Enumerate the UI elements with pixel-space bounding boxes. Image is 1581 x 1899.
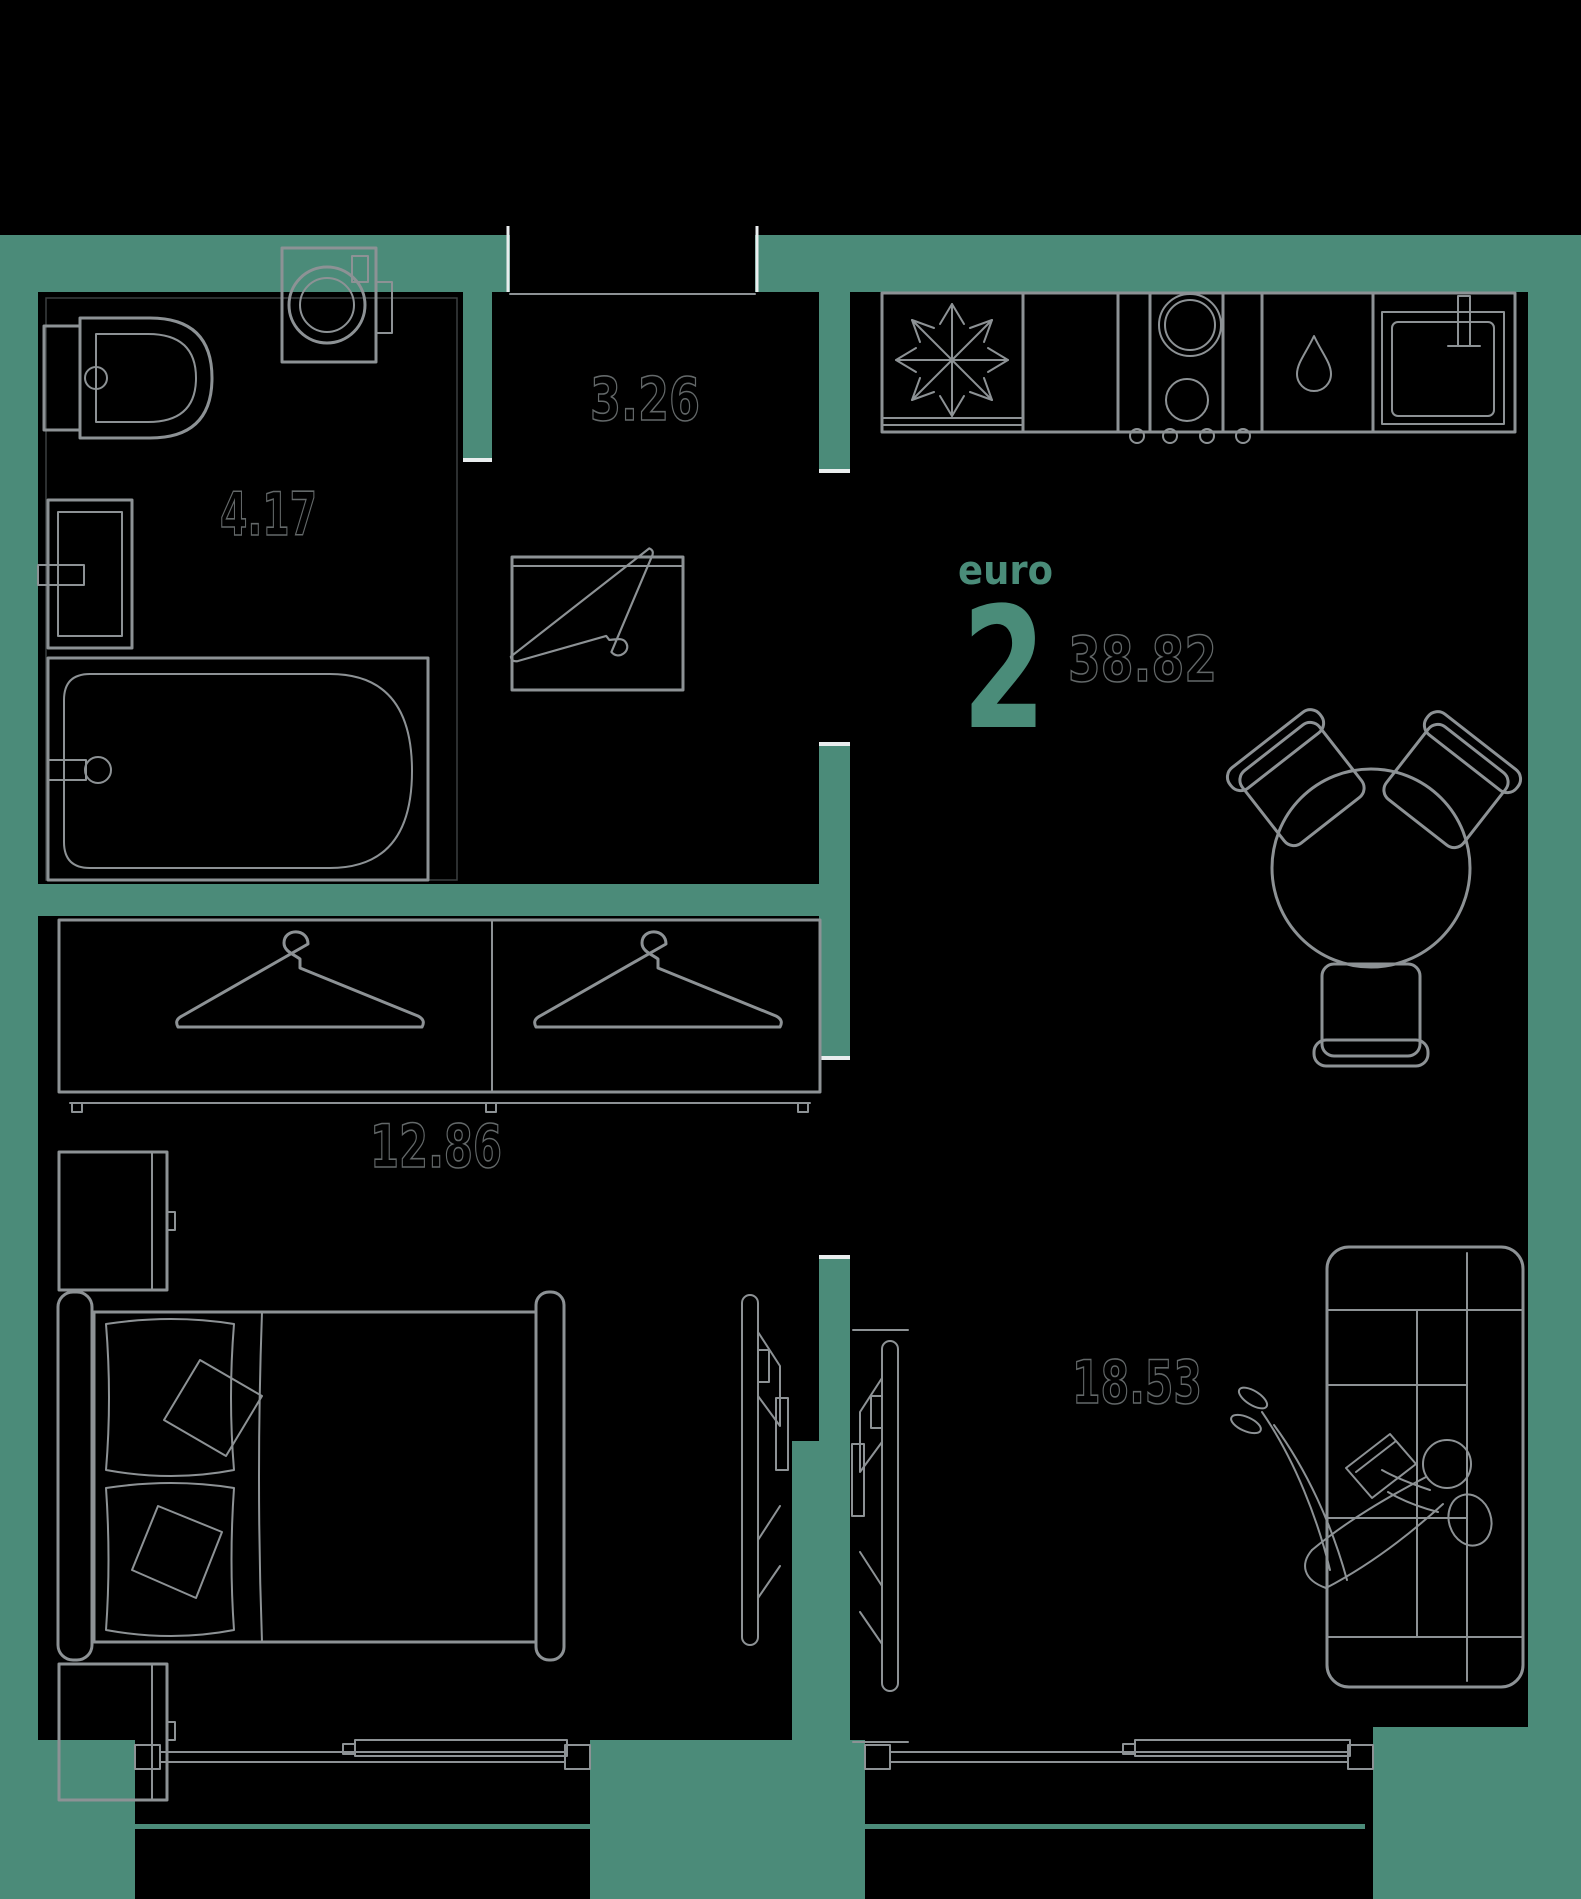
pillow (106, 1483, 234, 1636)
window-sliding-pane (355, 1740, 567, 1756)
sofa-icon (1327, 1247, 1523, 1687)
pillow (106, 1319, 262, 1476)
wall-divider-a (819, 292, 850, 473)
window-living (865, 1740, 1373, 1769)
clothes-hanger-icon (510, 548, 691, 710)
cap-divider-c-top (819, 1255, 850, 1259)
tv-icon (742, 1295, 788, 1645)
floorplan-canvas: 4.17 3.26 (0, 0, 1581, 1899)
clothes-hanger-icon (535, 932, 782, 1027)
cap-divider-a (819, 469, 850, 473)
dining-table (1272, 769, 1470, 967)
bathroom: 4.17 (38, 248, 457, 880)
wall-divider-c (819, 1255, 850, 1441)
bathroom-sink-icon (38, 500, 132, 648)
living-room: 18.53 (852, 1247, 1523, 1742)
balcony-sill-left (112, 1824, 612, 1829)
wall-divider-d (792, 1441, 850, 1790)
balcony-sill-right (770, 1824, 1365, 1829)
floorplan-drawing: 4.17 3.26 (0, 0, 1581, 1899)
hallway-area-label: 3.26 (590, 365, 700, 435)
wall-bathroom-right-stub (463, 292, 492, 462)
bathroom-area-label: 4.17 (220, 480, 317, 550)
kitchen (882, 293, 1515, 443)
wall-left (0, 235, 38, 1795)
living-area-label: 18.53 (1072, 1348, 1202, 1418)
window-end-block (565, 1745, 590, 1769)
water-drop-icon (1297, 336, 1331, 391)
nightstand (59, 1152, 175, 1290)
kitchen-sink-icon (1382, 296, 1504, 424)
window-sliding-pane (1135, 1740, 1350, 1756)
wall-top-right (755, 235, 1581, 292)
window-end-block (865, 1745, 890, 1769)
wardrobe (59, 920, 820, 1112)
wall-divider-b (819, 742, 850, 1060)
kitchen-counter (882, 293, 1515, 432)
snowflake-icon (896, 304, 1008, 416)
window-end-block (1348, 1745, 1373, 1769)
room-count-label: 2 (962, 571, 1046, 767)
blanket-fold (259, 1312, 262, 1642)
dining-chair (1223, 705, 1376, 856)
bedroom: 12.86 (58, 920, 820, 1800)
bedroom-area-label: 12.86 (370, 1112, 502, 1182)
title-block: euro 2 38.82 (958, 548, 1217, 767)
person-relaxing-icon (1229, 1384, 1498, 1588)
wall-top-left (0, 235, 510, 292)
cap-divider-b-top (819, 742, 850, 746)
clothes-hanger-icon (177, 932, 424, 1027)
bathtub-icon (48, 658, 428, 880)
wardrobe-foot (486, 1103, 496, 1112)
bathroom-finish-line (46, 298, 457, 880)
stove-burners-icon (1130, 294, 1250, 443)
dining-chair (1314, 964, 1428, 1066)
wardrobe-foot (798, 1103, 808, 1112)
window-end-block (135, 1745, 160, 1769)
wall-right (1528, 235, 1581, 1899)
dining-set (1223, 705, 1526, 1066)
hall-closet (510, 548, 691, 710)
cap-bath-stub (463, 458, 492, 462)
bed-icon (58, 1292, 564, 1660)
toilet-icon (44, 318, 212, 438)
wall-bathroom-bottom (38, 884, 850, 916)
wall-bottom-left-block (0, 1740, 135, 1899)
wardrobe-foot (72, 1103, 82, 1112)
total-area-label: 38.82 (1068, 623, 1217, 696)
cap-divider-b-bottom (819, 1056, 850, 1060)
window-bedroom (135, 1740, 590, 1769)
hallway: 3.26 (510, 365, 700, 710)
tv-icon (852, 1341, 898, 1691)
dining-chair (1373, 707, 1526, 858)
wall-bottom-right-block (1373, 1727, 1581, 1899)
wall-bottom-middle-block (590, 1740, 865, 1899)
